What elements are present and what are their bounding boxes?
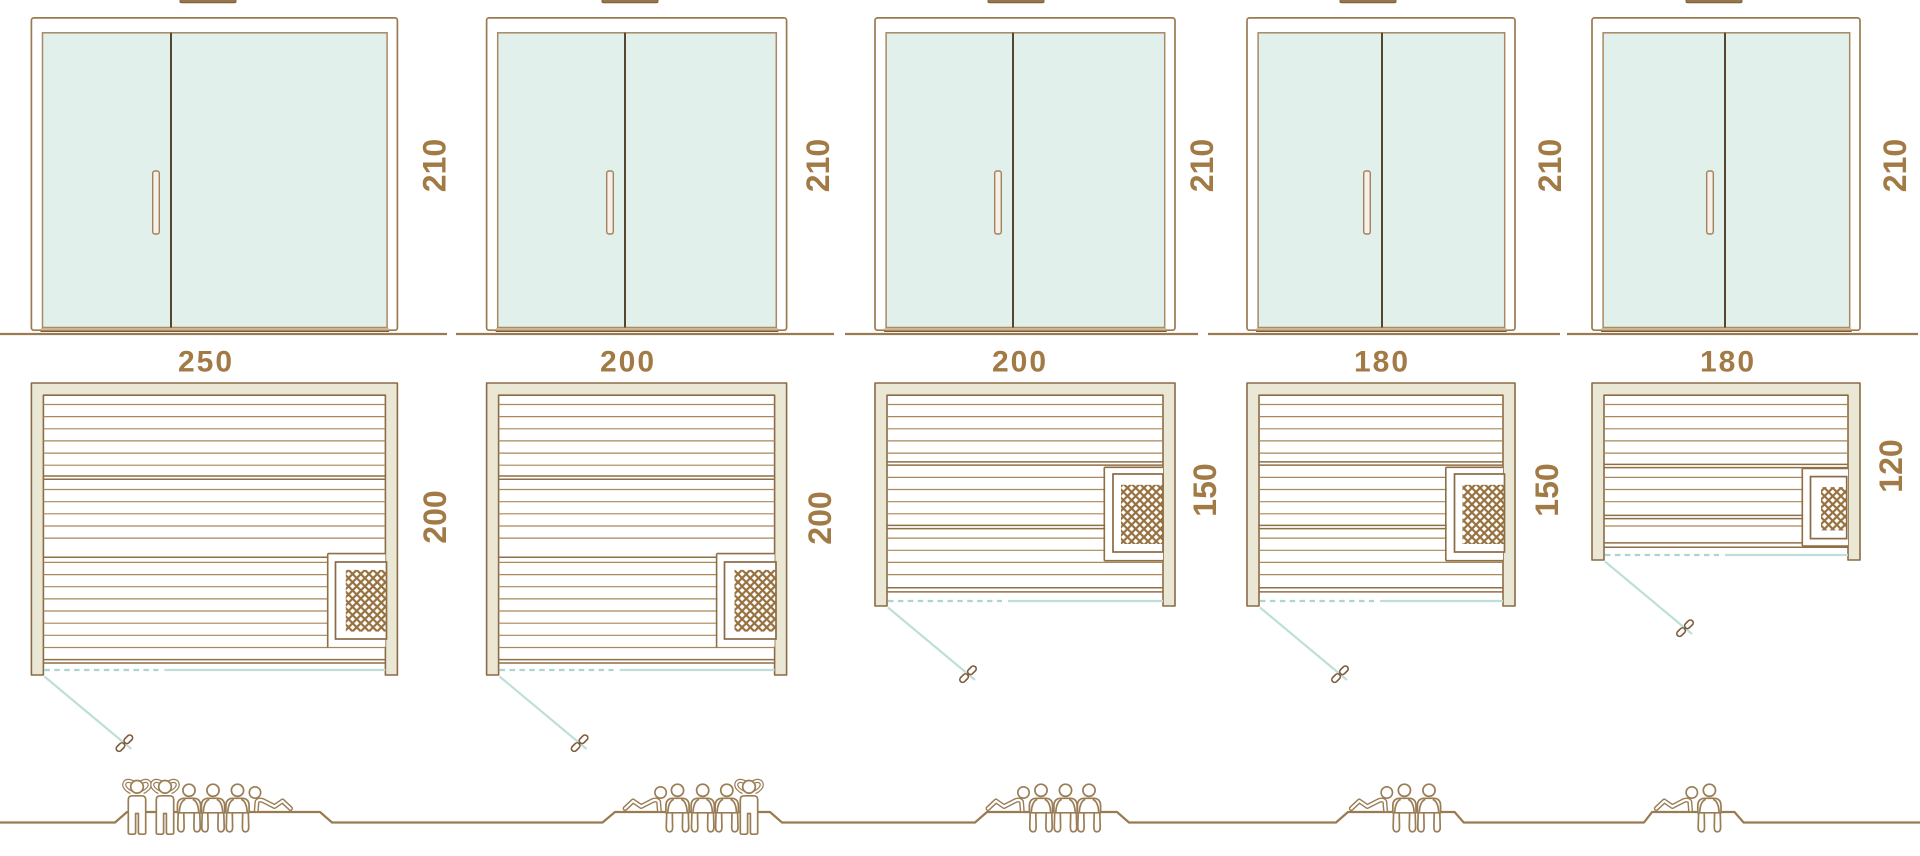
svg-text:200: 200 xyxy=(417,490,453,543)
svg-text:150: 150 xyxy=(1529,463,1565,516)
svg-text:210: 210 xyxy=(800,139,836,192)
svg-text:180: 180 xyxy=(1354,346,1410,379)
svg-text:250: 250 xyxy=(178,346,234,379)
svg-text:180: 180 xyxy=(1700,346,1756,379)
svg-text:200: 200 xyxy=(600,346,656,379)
svg-text:210: 210 xyxy=(1877,139,1913,192)
svg-text:150: 150 xyxy=(1187,463,1223,516)
svg-text:210: 210 xyxy=(417,139,453,192)
svg-text:200: 200 xyxy=(992,346,1048,379)
svg-text:120: 120 xyxy=(1873,439,1909,492)
svg-text:210: 210 xyxy=(1184,139,1220,192)
svg-text:200: 200 xyxy=(802,491,838,544)
svg-text:210: 210 xyxy=(1532,139,1568,192)
